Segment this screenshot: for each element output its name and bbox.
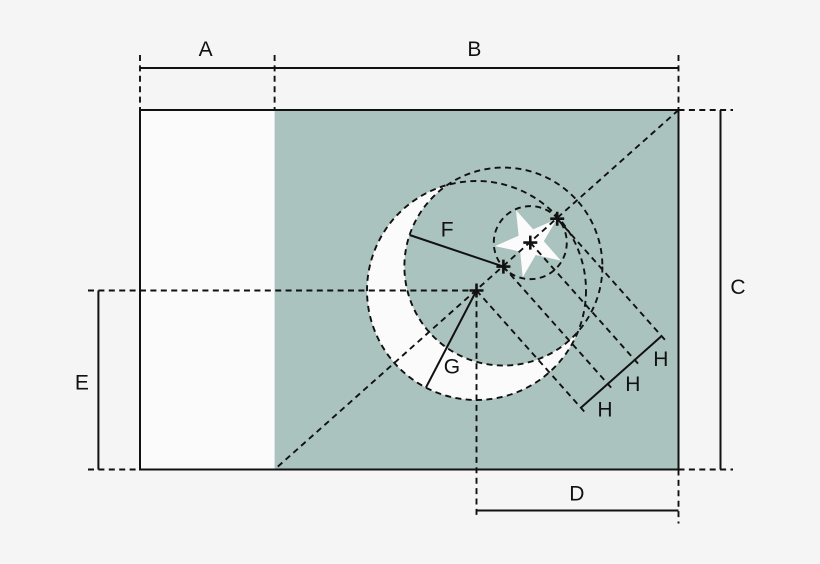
svg-text:B: B	[467, 38, 481, 61]
svg-text:G: G	[444, 355, 460, 378]
svg-text:H: H	[597, 398, 612, 421]
svg-text:C: C	[730, 276, 745, 299]
svg-text:F: F	[441, 218, 454, 241]
svg-text:H: H	[625, 373, 640, 396]
svg-text:E: E	[75, 372, 89, 395]
svg-text:H: H	[653, 348, 668, 371]
svg-text:A: A	[199, 38, 213, 61]
svg-text:D: D	[569, 483, 584, 506]
